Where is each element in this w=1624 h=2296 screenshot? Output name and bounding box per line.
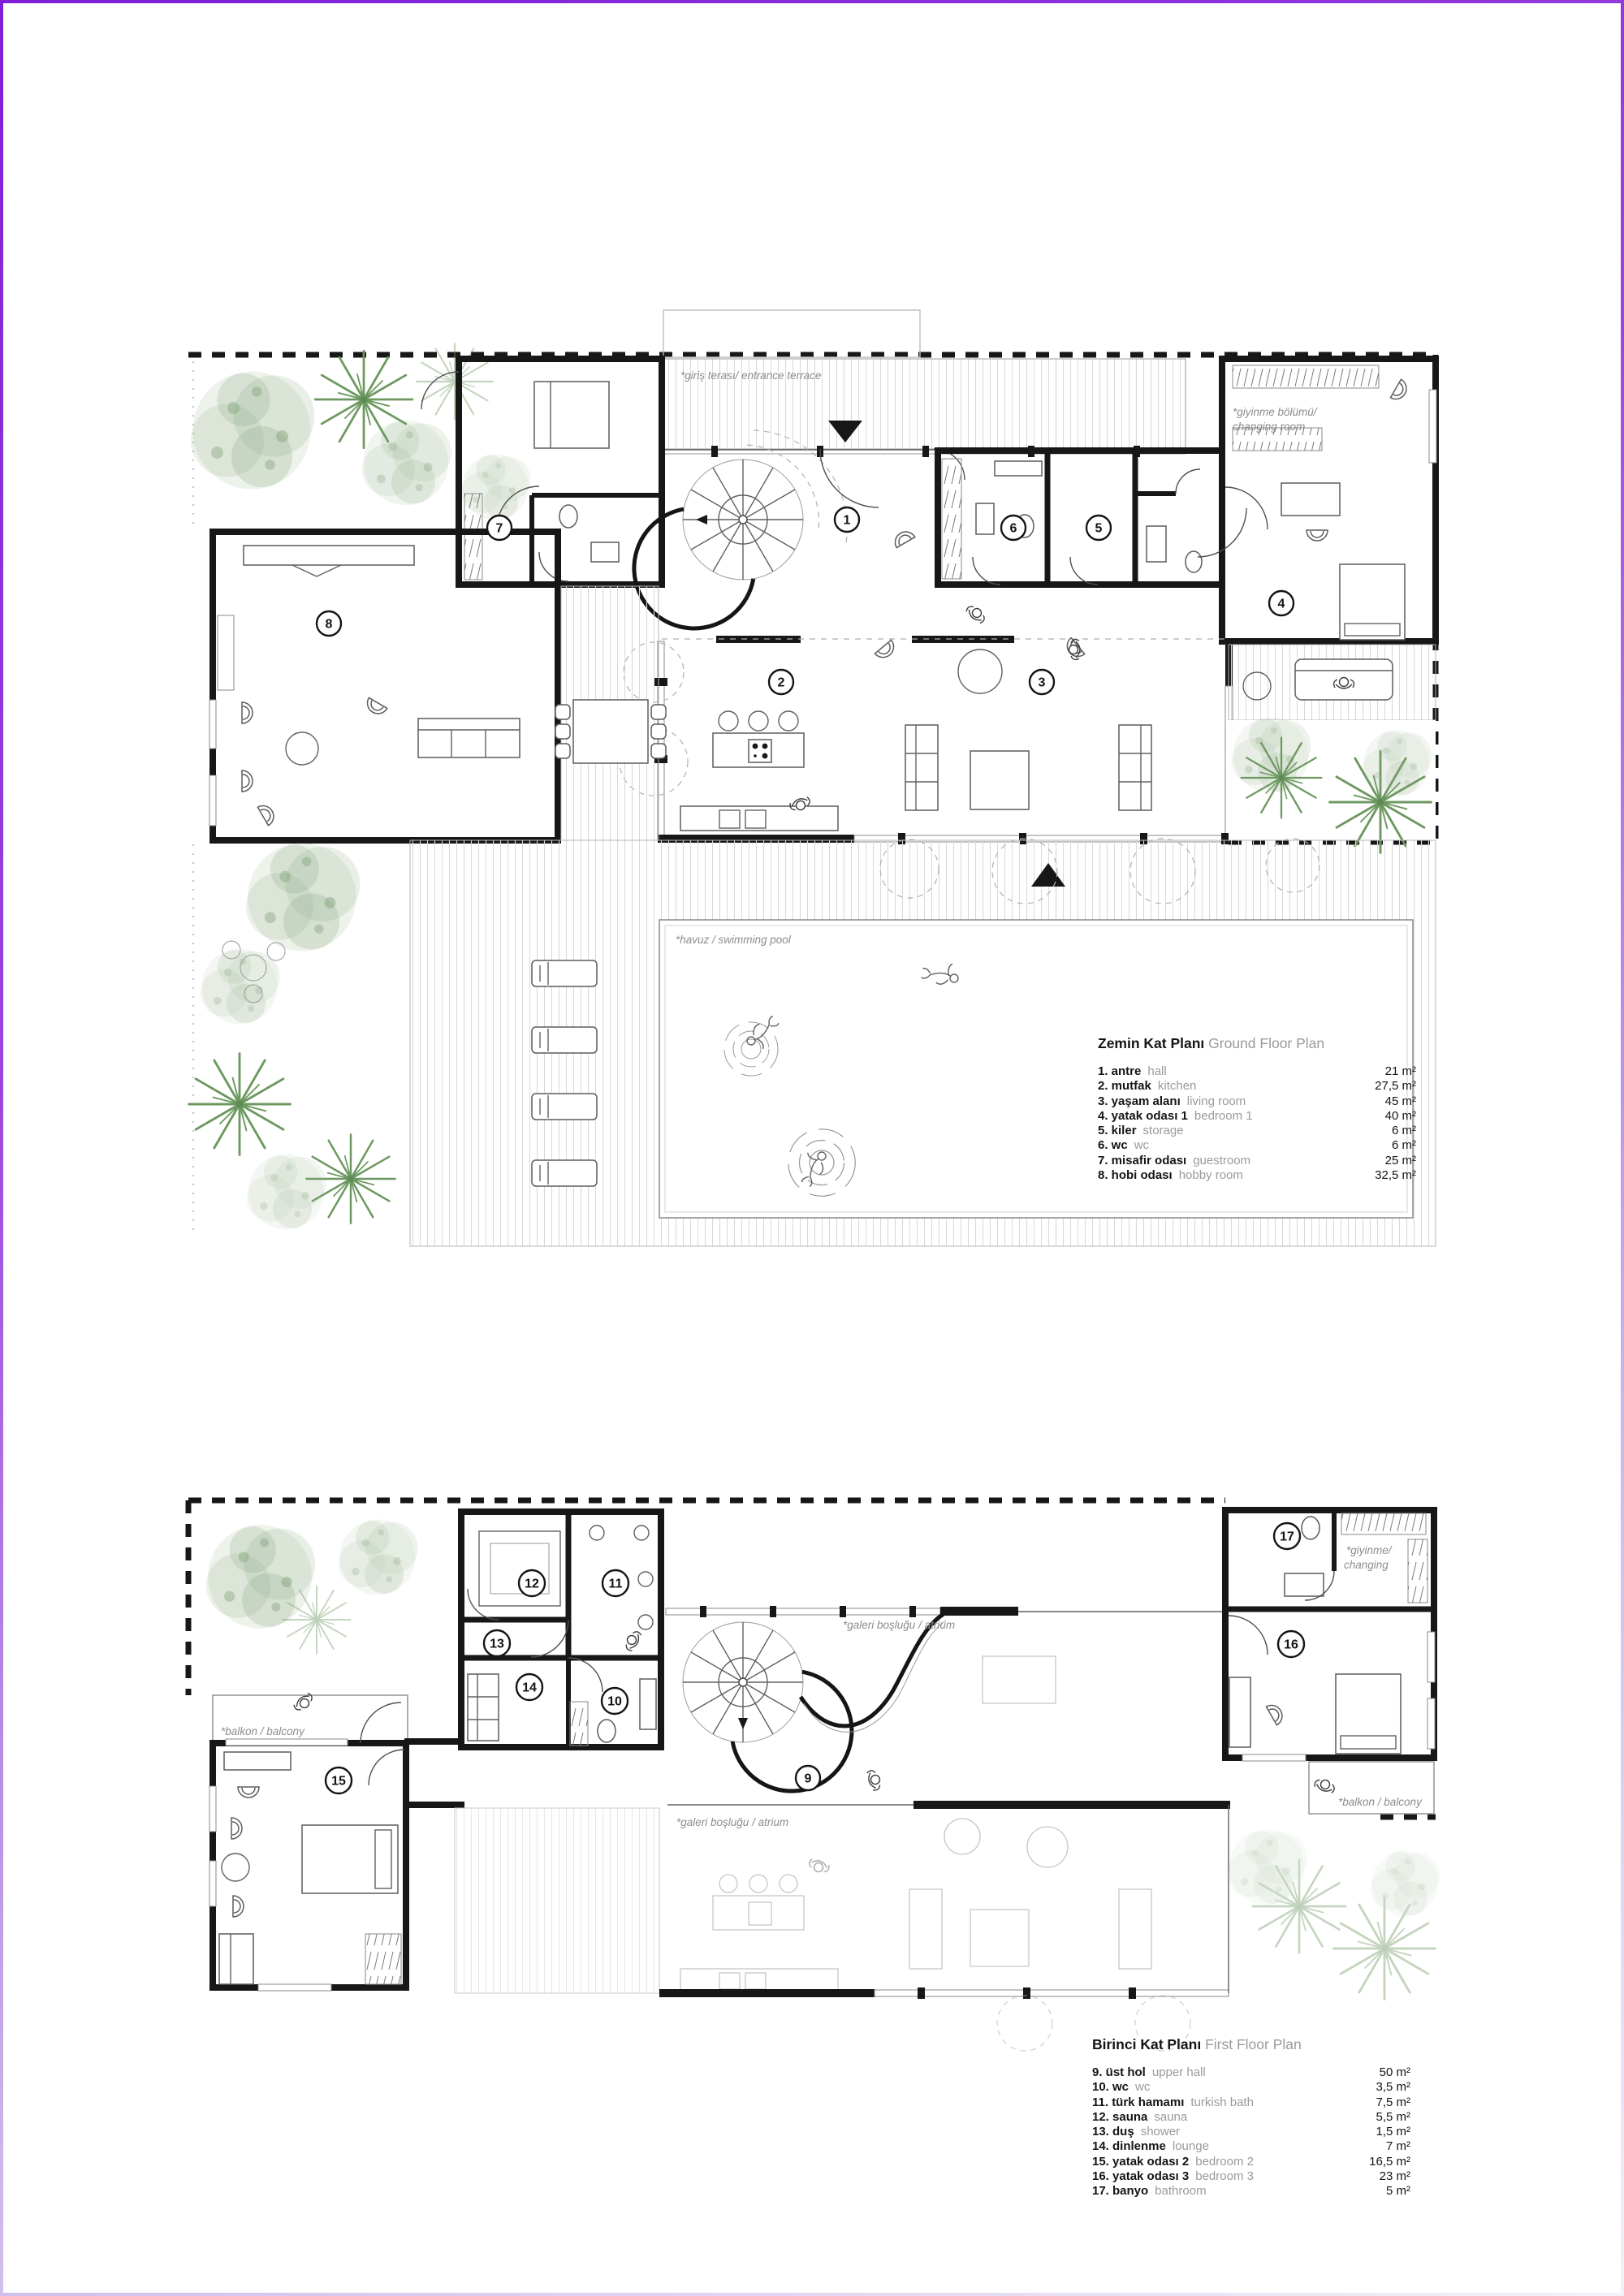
- room-marker-7: 7: [487, 516, 512, 540]
- svg-text:5: 5: [1095, 522, 1103, 536]
- hall-ground: [634, 430, 987, 628]
- legend-row: 1. antre hall 21 m²: [1098, 1064, 1416, 1079]
- atrium-void: *galeri boşluğu / atrium: [455, 1805, 1229, 2051]
- svg-text:11: 11: [609, 1577, 623, 1591]
- room-marker-8: 8: [317, 611, 341, 636]
- legend-row: 9. üst hol upper hall 50 m²: [1092, 2065, 1410, 2080]
- room-marker-10: 10: [602, 1688, 628, 1714]
- ground-floor-legend-title: Zemin Kat Planı Ground Floor Plan: [1098, 1035, 1416, 1052]
- hobby-room-block: [209, 486, 558, 840]
- room-marker-14: 14: [516, 1674, 542, 1700]
- svg-text:14: 14: [522, 1681, 537, 1695]
- entrance-terrace: *giriş terası/ entrance terrace: [659, 310, 1186, 457]
- first-floor-plan: *galeri boşluğu / atrium *giyinme/ chang…: [188, 1500, 1440, 2231]
- changing-label-2: changing: [1344, 1559, 1389, 1571]
- room-marker-11: 11: [603, 1570, 628, 1596]
- svg-text:1: 1: [844, 514, 851, 528]
- service-rooms-row: [938, 451, 1222, 585]
- svg-text:12: 12: [525, 1577, 539, 1591]
- room-marker-4: 4: [1269, 591, 1294, 615]
- changing-label-1: *giyinme/: [1346, 1544, 1393, 1556]
- first-floor-legend-title: Birinci Kat Planı First Floor Plan: [1092, 2036, 1410, 2053]
- legend-row: 17. banyo bathroom 5 m²: [1092, 2184, 1410, 2199]
- svg-text:15: 15: [331, 1775, 346, 1789]
- legend-row: 5. kiler storage 6 m²: [1098, 1124, 1416, 1138]
- svg-text:13: 13: [490, 1638, 504, 1651]
- guestroom-block: [421, 359, 662, 585]
- ground-floor-plan: *giriş terası/ entrance terrace: [188, 310, 1436, 1246]
- svg-text:10: 10: [607, 1695, 622, 1709]
- atrium-upper-label: *galeri boşluğu / atrium: [843, 1619, 955, 1631]
- room-marker-3: 3: [1030, 670, 1054, 694]
- legend-row: 10. wc wc 3,5 m²: [1092, 2080, 1410, 2095]
- atrium-lower-label: *galeri boşluğu / atrium: [676, 1816, 788, 1828]
- room-marker-12: 12: [519, 1570, 545, 1596]
- legend-row: 12. sauna sauna 5,5 m²: [1092, 2110, 1410, 2125]
- bedroom1-block: *giyinme bölümü/ changing room: [1198, 359, 1436, 641]
- first-floor-ghost-garden: [1228, 1830, 1440, 2000]
- pool-label: *havuz / swimming pool: [676, 934, 792, 946]
- legend-row: 2. mutfak kitchen 27,5 m²: [1098, 1079, 1416, 1094]
- legend-row: 16. yatak odası 3 bedroom 3 23 m²: [1092, 2169, 1410, 2184]
- svg-text:8: 8: [326, 618, 333, 632]
- entrance-terrace-label: *giriş terası/ entrance terrace: [680, 369, 821, 382]
- first-floor-legend-rows: 9. üst hol upper hall 50 m² 10. wc wc 3,…: [1092, 2065, 1410, 2199]
- svg-text:3: 3: [1039, 676, 1046, 690]
- room-marker-17: 17: [1274, 1523, 1300, 1549]
- svg-text:4: 4: [1278, 598, 1285, 611]
- room-marker-1: 1: [835, 507, 859, 532]
- bedroom3-block: *giyinme/ changing *balkon / balcony: [1225, 1510, 1435, 1814]
- upper-hall: *galeri boşluğu / atrium: [666, 1606, 1230, 1809]
- room-marker-13: 13: [484, 1630, 510, 1656]
- first-floor-legend: Birinci Kat Planı First Floor Plan 9. üs…: [1092, 2036, 1410, 2231]
- room-marker-2: 2: [769, 670, 793, 694]
- kitchen-living-row: [620, 636, 1233, 844]
- svg-text:9: 9: [805, 1772, 812, 1786]
- legend-row: 4. yatak odası 1 bedroom 1 40 m²: [1098, 1109, 1416, 1124]
- floor-plan-drawing: *giriş terası/ entrance terrace: [0, 0, 1624, 2296]
- legend-row: 11. türk hamamı turkish bath 7,5 m²: [1092, 2095, 1410, 2110]
- svg-text:17: 17: [1280, 1530, 1294, 1544]
- covered-terrace-dining: [555, 586, 666, 840]
- changing-room-label-2: changing room: [1233, 421, 1305, 433]
- legend-row: 14. dinlenme lounge 7 m²: [1092, 2139, 1410, 2154]
- legend-row: 13. duş shower 1,5 m²: [1092, 2125, 1410, 2139]
- legend-row: 6. wc wc 6 m²: [1098, 1138, 1416, 1153]
- garden-bottom-left: [189, 843, 395, 1229]
- svg-text:6: 6: [1010, 522, 1017, 536]
- legend-row: 7. misafir odası guestroom 25 m²: [1098, 1154, 1416, 1168]
- spiral-staircase-first: [683, 1622, 852, 1791]
- ground-floor-legend-rows: 1. antre hall 21 m² 2. mutfak kitchen 27…: [1098, 1064, 1416, 1183]
- svg-text:7: 7: [496, 522, 503, 536]
- balcony-left-label: *balkon / balcony: [221, 1725, 305, 1737]
- svg-text:16: 16: [1284, 1638, 1298, 1652]
- room-marker-5: 5: [1086, 516, 1111, 540]
- svg-text:2: 2: [778, 676, 785, 690]
- wellness-block: [461, 1512, 661, 1747]
- ground-floor-legend: Zemin Kat Planı Ground Floor Plan 1. ant…: [1098, 1035, 1416, 1214]
- first-floor-trees: [206, 1520, 418, 1654]
- legend-row: 8. hobi odası hobby room 32,5 m²: [1098, 1168, 1416, 1183]
- room-marker-9: 9: [796, 1766, 820, 1790]
- room-marker-16: 16: [1278, 1631, 1304, 1657]
- bedroom1-terrace: [1229, 645, 1436, 852]
- balcony-right-label: *balkon / balcony: [1338, 1796, 1423, 1808]
- bedroom2-block: *balkon / balcony: [209, 1692, 464, 1991]
- room-marker-6: 6: [1001, 516, 1026, 540]
- legend-row: 15. yatak odası 2 bedroom 2 16,5 m²: [1092, 2155, 1410, 2169]
- room-marker-15: 15: [326, 1767, 352, 1793]
- legend-row: 3. yaşam alanı living room 45 m²: [1098, 1094, 1416, 1109]
- changing-room-label-1: *giyinme bölümü/: [1233, 406, 1318, 418]
